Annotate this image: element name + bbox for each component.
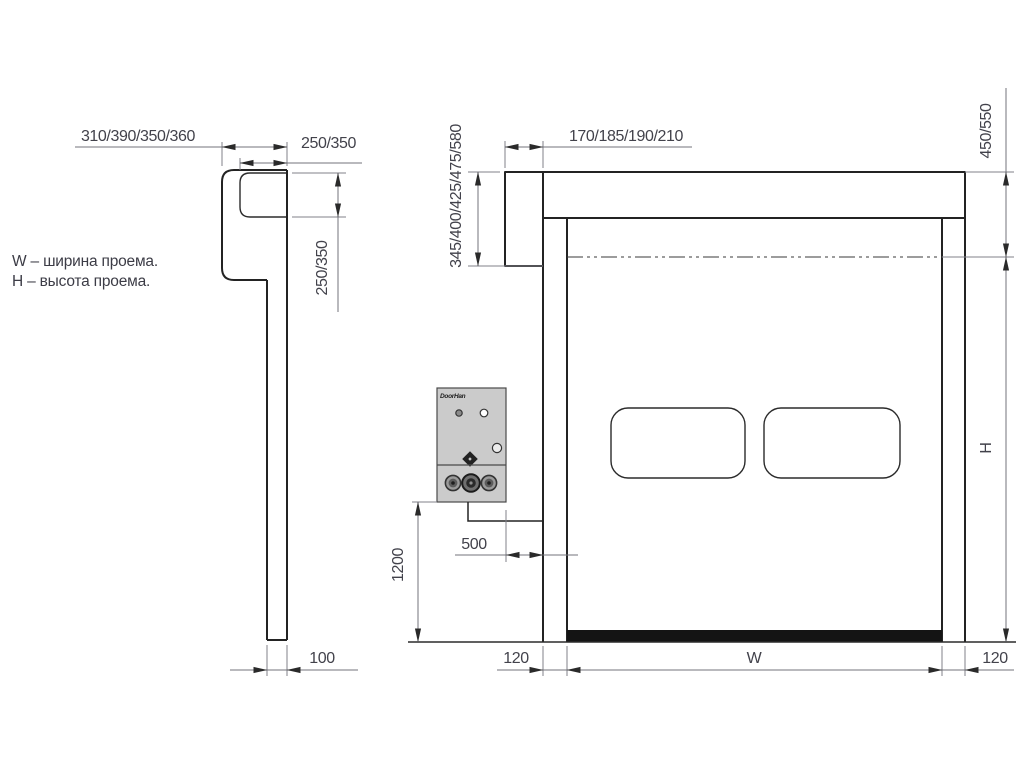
dim-label-roll-horizontal: 250/350 bbox=[301, 135, 357, 152]
dim-label-bracket-height: 345/400/425/475/580 bbox=[448, 124, 465, 268]
side-guide-rail bbox=[267, 170, 287, 640]
dim-label-opening-width: W bbox=[747, 650, 763, 667]
dim-bracket-height: 345/400/425/475/580 bbox=[448, 124, 543, 268]
hood-box bbox=[543, 172, 965, 218]
legend: W – ширина проема. H – высота проема. bbox=[12, 253, 158, 290]
push-button-stop bbox=[462, 474, 480, 492]
control-box-brand-label: DoorHan bbox=[440, 393, 466, 400]
keyhole bbox=[492, 443, 501, 452]
push-button-close bbox=[481, 475, 496, 490]
motor-bracket-plate bbox=[505, 172, 543, 266]
dim-roll-horizontal: 250/350 bbox=[240, 135, 362, 170]
side-hood-outline bbox=[222, 170, 287, 280]
push-button-open bbox=[445, 475, 460, 490]
dim-roll-vertical: 250/350 bbox=[292, 173, 346, 312]
dim-control-offset: 500 bbox=[455, 510, 578, 562]
side-roll-outline bbox=[240, 173, 287, 217]
dim-label-box-top-to-axis: 450/550 bbox=[978, 103, 995, 159]
legend-height-note: H – высота проема. bbox=[12, 273, 150, 290]
speed-door-installation-drawing: W – ширина проема. H – высота проема. 31… bbox=[0, 0, 1024, 768]
left-guide-column bbox=[543, 218, 567, 642]
control-box: DoorHan bbox=[437, 388, 543, 521]
dim-label-bracket-width: 170/185/190/210 bbox=[569, 128, 684, 145]
curtain-window-left bbox=[611, 408, 745, 478]
dim-label-hood-depth: 310/390/350/360 bbox=[81, 128, 196, 145]
dim-bottom-row: 120 W 120 bbox=[497, 646, 1014, 676]
extension-lines bbox=[505, 141, 543, 168]
dim-label-left-column: 120 bbox=[503, 650, 529, 667]
dim-hood-depth: 310/390/350/360 bbox=[75, 128, 287, 166]
extension-lines bbox=[222, 142, 287, 166]
indicator-light-left bbox=[456, 410, 462, 416]
dim-label-control-height: 1200 bbox=[390, 548, 407, 582]
side-view: 310/390/350/360 250/350 250/350 100 bbox=[75, 128, 362, 676]
right-guide-column bbox=[942, 218, 965, 642]
front-view: DoorHan bbox=[390, 88, 1016, 676]
extension-lines bbox=[267, 645, 287, 676]
legend-width-note: W – ширина проема. bbox=[12, 253, 158, 270]
dim-opening-height: H bbox=[978, 257, 1006, 642]
dim-label-roll-vertical: 250/350 bbox=[314, 240, 331, 296]
dim-label-rail-width: 100 bbox=[309, 650, 335, 667]
dim-label-right-column: 120 bbox=[982, 650, 1008, 667]
dim-control-height: 1200 bbox=[390, 502, 437, 642]
curtain-window-right bbox=[764, 408, 900, 478]
drawing-canvas: W – ширина проема. H – высота проема. 31… bbox=[0, 0, 1024, 768]
bottom-seal-bar bbox=[567, 630, 942, 642]
dim-label-opening-height: H bbox=[978, 442, 995, 453]
dim-box-top-to-axis: 450/550 bbox=[965, 88, 1014, 257]
dim-rail-width: 100 bbox=[230, 645, 358, 676]
dim-label-control-offset: 500 bbox=[461, 536, 487, 553]
indicator-light-right bbox=[480, 409, 488, 417]
dim-bracket-width: 170/185/190/210 bbox=[505, 128, 692, 168]
